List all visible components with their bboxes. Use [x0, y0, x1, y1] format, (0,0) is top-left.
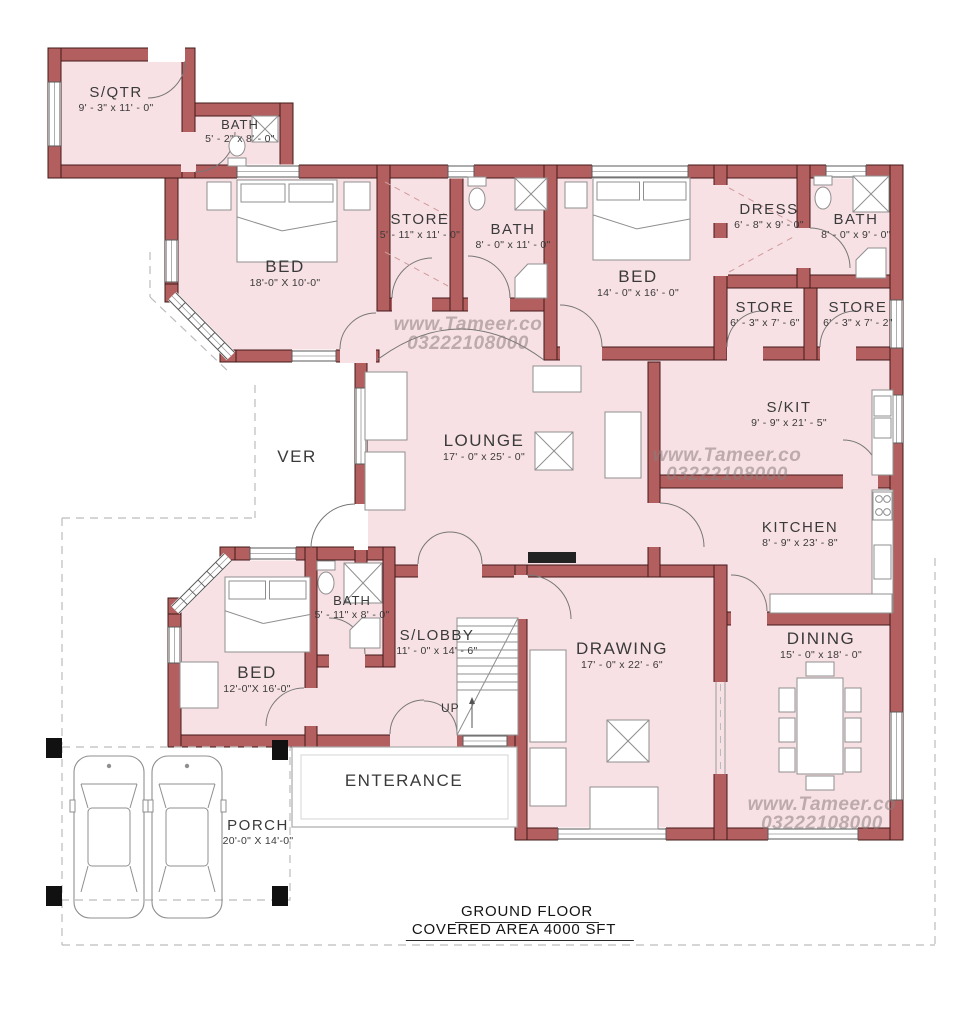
room-label-bed2: BED 14' - 0" x 16' - 0": [597, 268, 679, 299]
door-opening: [304, 688, 318, 726]
dining-chair: [845, 748, 861, 772]
sofa: [533, 366, 581, 392]
car-mirror: [70, 800, 75, 812]
room-label-kitchen: KITCHEN 8' - 9" x 23' - 8": [762, 520, 838, 549]
kitchen-sink: [874, 545, 891, 579]
tv-console: [528, 552, 576, 563]
room-label-bed3: BED 12'-0"X 16'-0": [223, 664, 291, 695]
sofa: [590, 787, 658, 829]
car-rear-window: [130, 866, 137, 892]
car-roof: [88, 808, 130, 866]
door-opening: [796, 228, 811, 268]
door-opening: [843, 474, 878, 489]
bed-pillow: [241, 184, 285, 202]
stairs-up-label: UP: [441, 701, 460, 715]
kitchen-counter: [770, 594, 892, 613]
car-body: [74, 756, 144, 918]
room-label-bath3: BATH 8' - 0" x 9' - 0": [821, 212, 891, 241]
room-label-bath2: BATH 8' - 0" x 11' - 0": [475, 222, 550, 251]
dining-chair: [806, 662, 834, 676]
car-emblem: [107, 764, 111, 768]
dining-table: [797, 678, 843, 774]
car-rear-window: [159, 866, 166, 892]
door-opening: [727, 346, 763, 361]
car-mirror: [143, 800, 148, 812]
room-label-porch: PORCH 20'-0" X 14'-0": [223, 818, 294, 847]
room-label-slobby: S/LOBBY 11' - 0" x 14' - 6": [396, 628, 477, 657]
room-label-dining: DINING 15' - 0" x 18' - 0": [780, 630, 862, 661]
room-label-store3: STORE 6' - 3" x 7' - 2": [823, 300, 893, 329]
room-label-enterance: ENTERANCE: [345, 772, 463, 790]
side-table: [565, 182, 587, 208]
car-mirror: [148, 800, 153, 812]
dining-chair: [845, 718, 861, 742]
door-opening: [329, 654, 365, 668]
sofa: [530, 650, 566, 742]
car-roof: [166, 808, 208, 866]
room-label-bath-sqtr: BATH 5' - 2" x 8' - 0": [205, 118, 275, 145]
door-opening: [468, 297, 510, 312]
sofa: [605, 412, 641, 478]
car-body: [152, 756, 222, 918]
side-table: [344, 182, 370, 210]
wall-segment: [804, 288, 817, 360]
armchair: [180, 662, 218, 708]
door-opening: [392, 297, 432, 312]
kitchen-sink: [874, 418, 891, 438]
bed-pillow: [229, 581, 266, 599]
door-opening: [713, 185, 728, 223]
side-table: [207, 182, 231, 210]
toilet-bowl: [318, 572, 334, 594]
room-label-bed1: BED 18'-0" X 10'-0": [250, 258, 321, 289]
door-opening: [354, 504, 368, 550]
room-label-drawing: DRAWING 17' - 0" x 22' - 6": [576, 640, 668, 671]
car-rear-window: [81, 866, 88, 892]
door-opening: [181, 132, 196, 172]
room-label-bath4: BATH 5' - 11" x 8' - 0": [314, 594, 389, 621]
car-mirror: [221, 800, 226, 812]
toilet-bowl: [815, 187, 831, 209]
dining-chair: [806, 776, 834, 790]
car-emblem: [185, 764, 189, 768]
door-opening: [713, 238, 728, 276]
porch-column: [272, 886, 288, 906]
door-opening: [148, 47, 185, 62]
kitchen-sink: [874, 396, 891, 416]
wall-segment: [48, 165, 903, 178]
dining-chair: [779, 688, 795, 712]
floorplan-drawing-canvas: [0, 0, 978, 1024]
watermark-2: www.Tameer.co 03222108000: [653, 446, 802, 484]
room-label-lounge: LOUNGE 17' - 0" x 25' - 0": [443, 432, 525, 463]
porch-column: [272, 740, 288, 760]
drawing-title: GROUND FLOOR: [455, 903, 599, 923]
bed-pillow: [644, 182, 687, 200]
room-label-store1: STORE 5' - 11" x 11' - 0": [380, 212, 460, 241]
bed-pillow: [270, 581, 307, 599]
dining-chair: [779, 718, 795, 742]
door-opening: [731, 611, 767, 626]
watermark-1: www.Tameer.co 03222108000: [394, 315, 543, 353]
watermark-3: www.Tameer.co 03222108000: [748, 795, 897, 833]
wall-segment: [185, 103, 290, 116]
room-label-sqtr: S/QTR 9' - 3" x 11' - 0": [78, 85, 153, 114]
car-windshield: [159, 784, 166, 808]
room-label-skit: S/KIT 9' - 9" x 21' - 5": [751, 400, 827, 429]
door-opening: [340, 349, 376, 363]
room-label-ver: VER: [277, 448, 316, 466]
car-windshield: [208, 784, 215, 808]
bed-pillow: [597, 182, 640, 200]
sofa: [530, 748, 566, 806]
dining-chair: [779, 748, 795, 772]
door-opening: [560, 346, 602, 361]
car-windshield: [130, 784, 137, 808]
toilet-tank: [814, 176, 832, 185]
dining-chair: [845, 688, 861, 712]
door-opening: [820, 346, 856, 361]
toilet-tank: [468, 177, 486, 186]
toilet-tank: [228, 158, 246, 166]
porch-column: [46, 886, 62, 906]
wall-segment: [355, 565, 727, 577]
room-label-dress: DRESS 6' - 8" x 9' - 0": [734, 202, 804, 231]
door-opening: [647, 503, 661, 547]
room-label-store2: STORE 6' - 3" x 7' - 6": [730, 300, 800, 329]
porch-column: [46, 738, 62, 758]
toilet-tank: [317, 561, 335, 570]
door-opening: [418, 564, 482, 578]
door-arc: [311, 504, 355, 548]
car-windshield: [81, 784, 88, 808]
door-opening: [390, 734, 457, 748]
bed-pillow: [289, 184, 333, 202]
sofa: [365, 452, 405, 510]
sofa: [365, 372, 407, 440]
toilet-bowl: [469, 188, 485, 210]
drawing-subtitle: COVERED AREA 4000 SFT: [406, 921, 634, 941]
car-rear-window: [208, 866, 215, 892]
door-opening: [514, 575, 528, 619]
floor-plan-page: S/QTR 9' - 3" x 11' - 0" BATH 5' - 2" x …: [0, 0, 978, 1024]
